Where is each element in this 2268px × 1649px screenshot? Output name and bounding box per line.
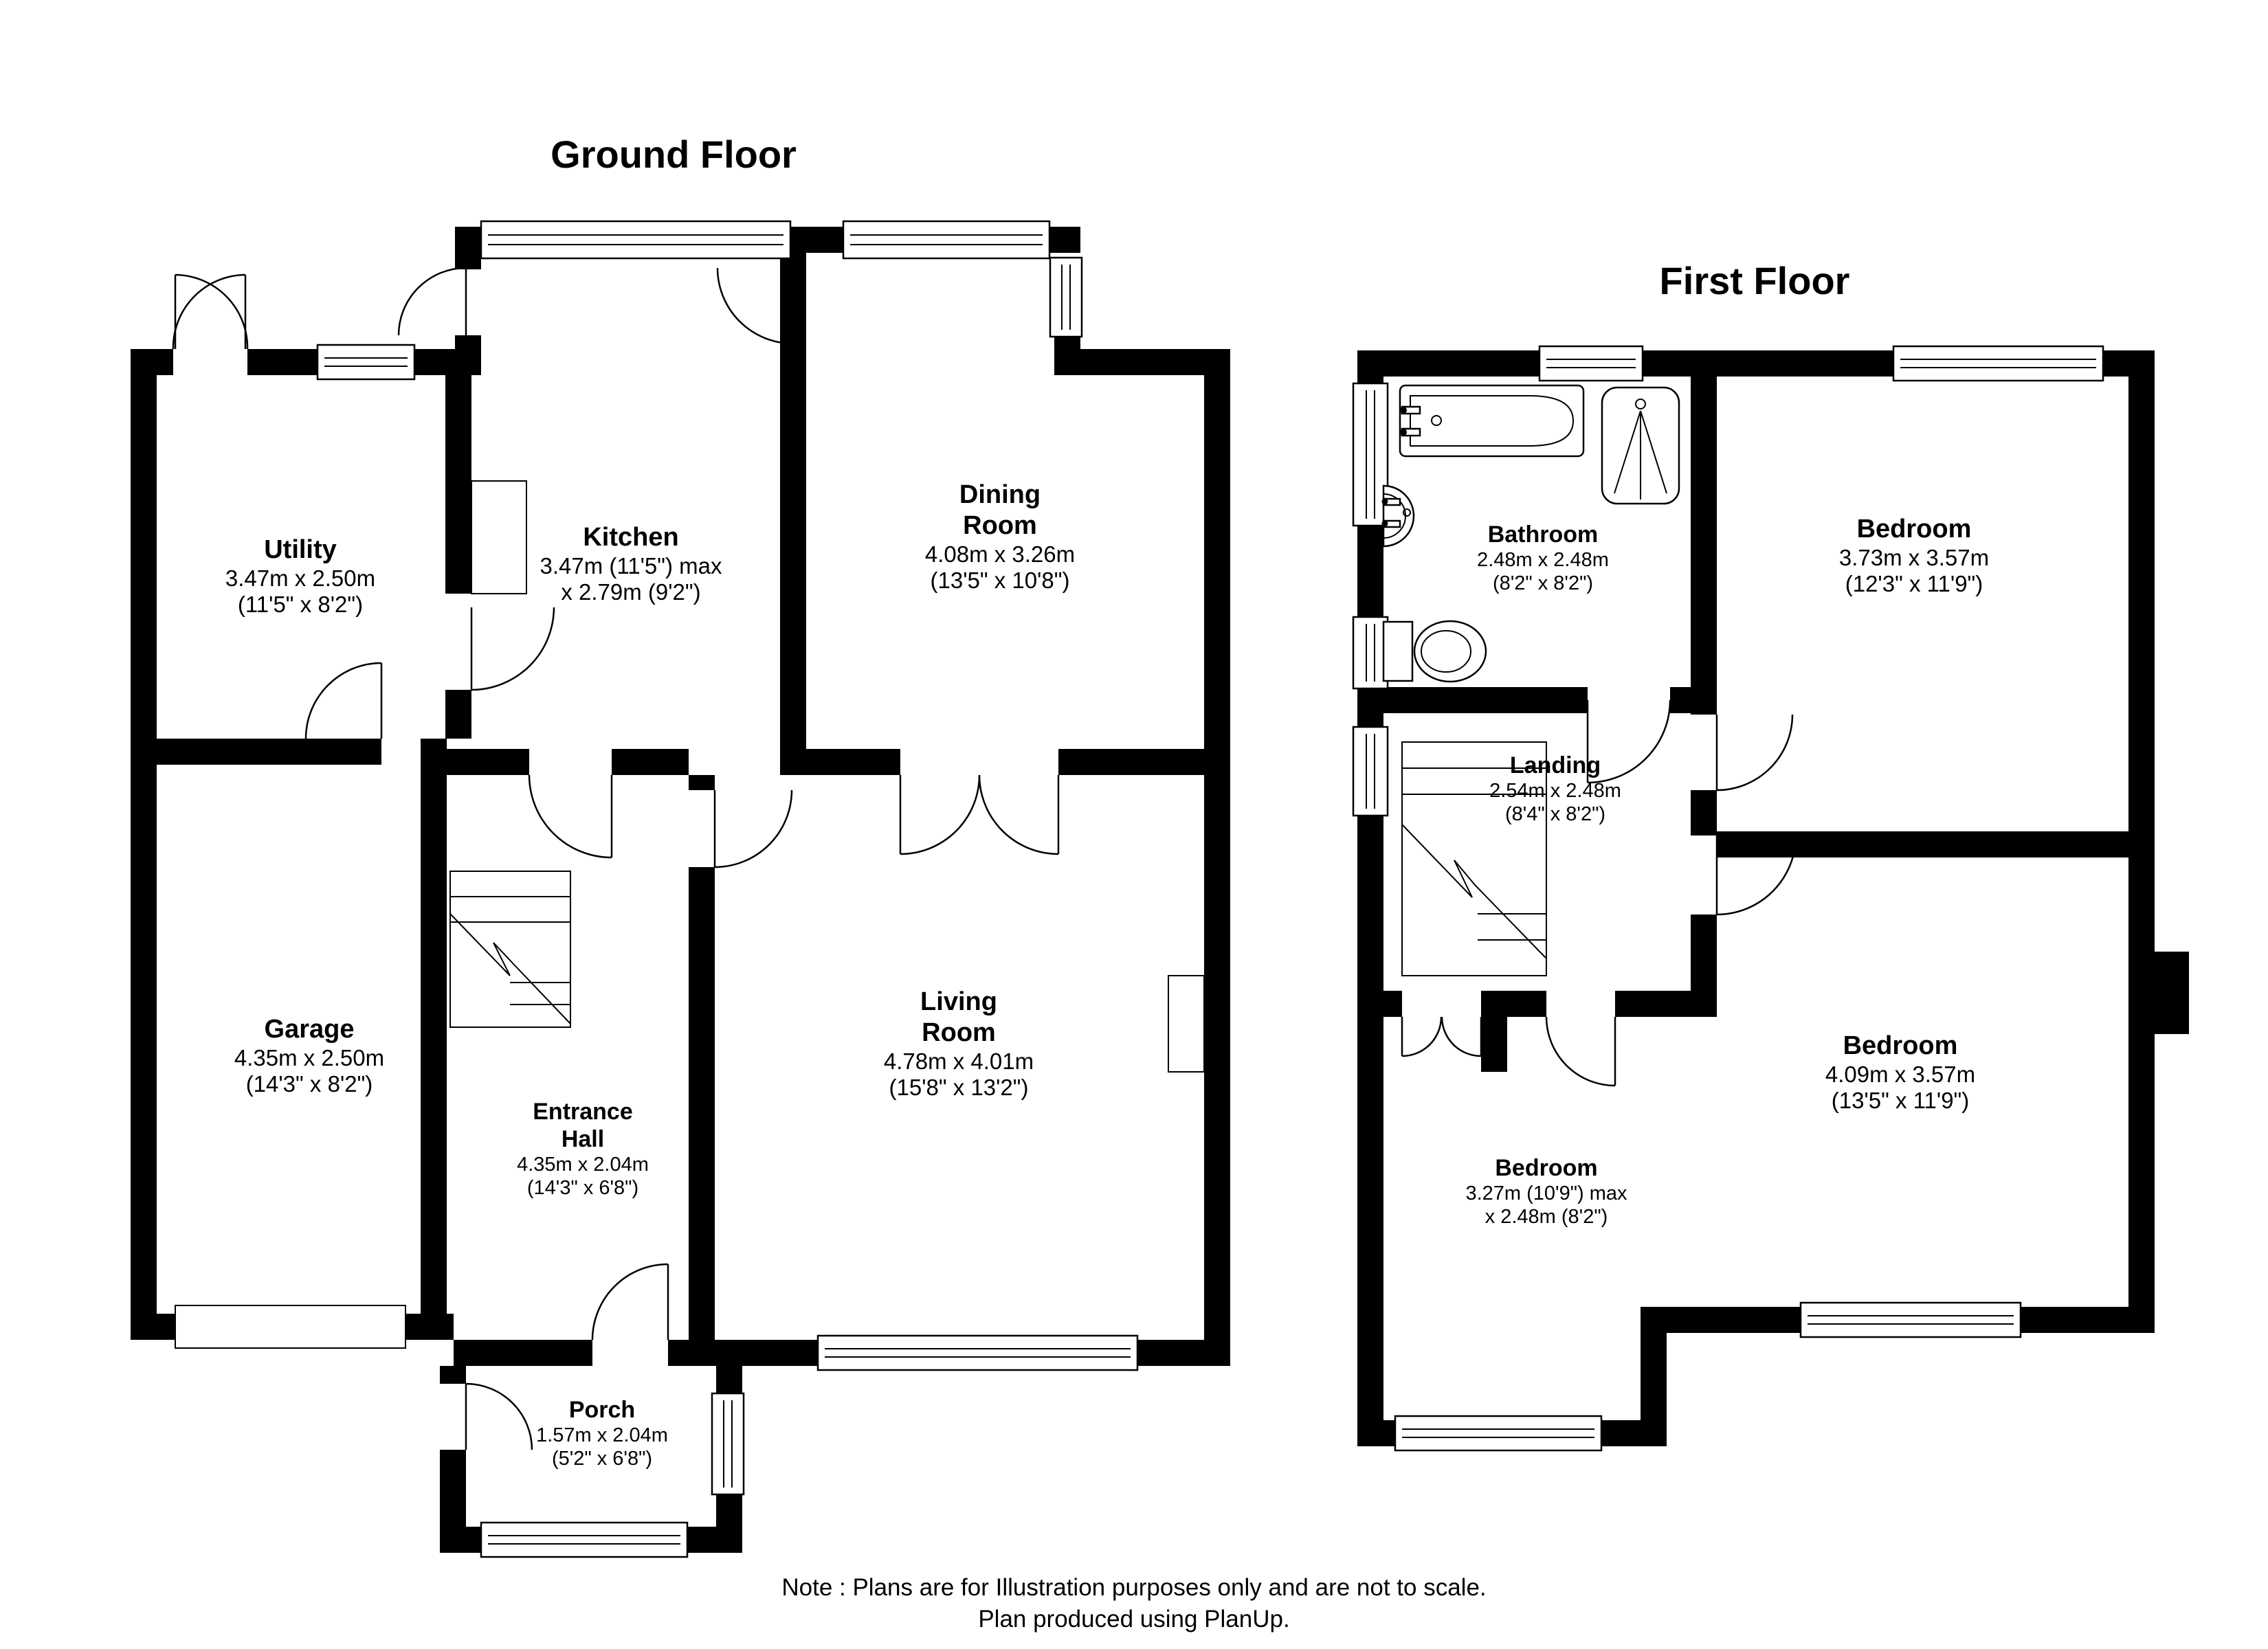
- shower-icon: [1602, 388, 1679, 504]
- bath-icon: [1400, 385, 1583, 456]
- sink-icon: [1382, 486, 1414, 546]
- disclaimer-line1: Note : Plans are for Illustration purpos…: [781, 1572, 1486, 1604]
- room-label-bedroom-back: Bedroom 4.09m x 3.57m (13'5" x 11'9"): [1825, 1031, 1975, 1114]
- disclaimer-note: Note : Plans are for Illustration purpos…: [781, 1572, 1486, 1635]
- ground-floor-title: Ground Floor: [551, 132, 797, 177]
- room-label-porch: Porch 1.57m x 2.04m (5'2" x 6'8"): [536, 1396, 668, 1470]
- room-label-dining-room: Dining Room 4.08m x 3.26m (13'5" x 10'8"…: [925, 480, 1075, 594]
- ground-floor-doors: [173, 268, 1058, 1450]
- room-label-living-room: Living Room 4.78m x 4.01m (15'8" x 13'2"…: [884, 987, 1034, 1101]
- kitchen-counter: [471, 481, 526, 594]
- room-label-entrance-hall: Entrance Hall 4.35m x 2.04m (14'3" x 6'8…: [517, 1098, 649, 1200]
- garage-door: [175, 1305, 405, 1348]
- room-label-bathroom: Bathroom 2.48m x 2.48m (8'2" x 8'2"): [1477, 521, 1609, 595]
- ground-floor-stairs: [450, 871, 570, 1027]
- room-label-bedroom-small: Bedroom 3.27m (10'9") max x 2.48m (8'2"): [1465, 1154, 1627, 1229]
- room-label-utility: Utility 3.47m x 2.50m (11'5" x 8'2"): [225, 535, 375, 618]
- first-floor-plan: [1353, 346, 2189, 1450]
- room-label-garage: Garage 4.35m x 2.50m (14'3" x 8'2"): [234, 1014, 384, 1097]
- room-label-bedroom-front: Bedroom 3.73m x 3.57m (12'3" x 11'9"): [1839, 514, 1989, 597]
- room-label-kitchen: Kitchen 3.47m (11'5") max x 2.79m (9'2"): [540, 522, 722, 605]
- floorplan-drawing: [0, 0, 2268, 1649]
- ground-floor-plan: [131, 221, 1230, 1557]
- disclaimer-line2: Plan produced using PlanUp.: [781, 1604, 1486, 1635]
- first-floor-title: First Floor: [1660, 258, 1850, 303]
- fireplace: [1168, 976, 1204, 1072]
- toilet-icon: [1383, 621, 1486, 682]
- room-label-landing: Landing 2.54m x 2.48m (8'4" x 8'2"): [1489, 752, 1621, 826]
- floorplan-canvas: Ground Floor First Floor Utility 3.47m x…: [0, 0, 2268, 1649]
